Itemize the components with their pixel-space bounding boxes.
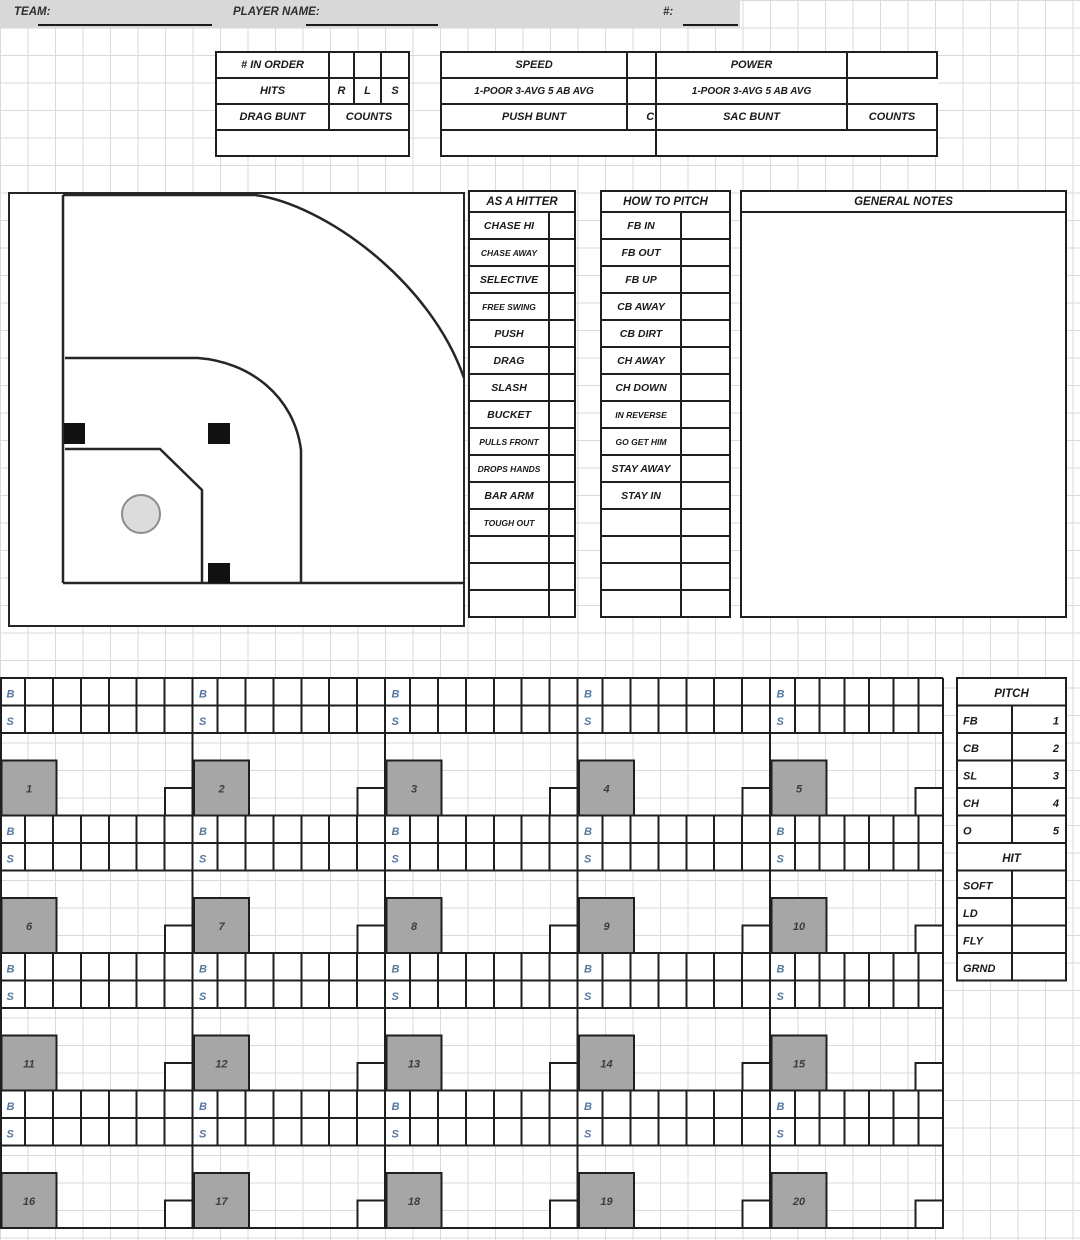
- connector-cell[interactable]: [916, 1063, 944, 1091]
- strike-row-label: S: [584, 1129, 592, 1141]
- info-cell: SAC BUNT: [656, 104, 847, 130]
- info-cell: DRAG BUNT: [216, 104, 329, 130]
- hit-type-value-cell[interactable]: [1012, 871, 1066, 899]
- player-name-label: PLAYER NAME:: [233, 6, 320, 18]
- info-cell: PUSH BUNT: [441, 104, 627, 130]
- check-cell[interactable]: [681, 239, 730, 266]
- connector-cell[interactable]: [916, 1201, 944, 1229]
- general-notes-header: GENERAL NOTES: [740, 190, 1067, 213]
- at-bat-number: 3: [411, 784, 417, 796]
- first-base: [208, 563, 230, 583]
- column-header: HOW TO PITCH: [601, 191, 730, 212]
- blank-label: [601, 563, 681, 590]
- check-cell[interactable]: [549, 536, 575, 563]
- info-cell: S: [381, 78, 409, 104]
- trait-label: CH DOWN: [601, 374, 681, 401]
- at-bat-number: 1: [26, 784, 32, 796]
- connector-cell[interactable]: [743, 1201, 771, 1229]
- trait-label: BUCKET: [469, 401, 549, 428]
- at-bat-number: 4: [602, 784, 609, 796]
- player-name-input-line[interactable]: [306, 24, 438, 26]
- check-cell[interactable]: [549, 509, 575, 536]
- ball-row-label: B: [7, 1101, 15, 1113]
- check-cell[interactable]: [549, 212, 575, 239]
- connector-cell[interactable]: [743, 788, 771, 816]
- second-base: [208, 423, 230, 444]
- connector-cell[interactable]: [358, 1201, 386, 1229]
- ball-row-label: B: [7, 689, 15, 701]
- blank-cell[interactable]: [847, 52, 937, 78]
- strike-row-label: S: [392, 854, 400, 866]
- as-a-hitter-table: AS A HITTERCHASE HICHASE AWAYSELECTIVEFR…: [468, 190, 576, 618]
- ball-row-label: B: [199, 689, 207, 701]
- ball-row-label: B: [7, 826, 15, 838]
- strike-row-label: S: [7, 854, 15, 866]
- ball-row-label: B: [199, 826, 207, 838]
- info-cell: L: [354, 78, 381, 104]
- at-bat-number: 19: [600, 1196, 613, 1208]
- team-input-line[interactable]: [38, 24, 212, 26]
- strike-row-label: S: [777, 716, 785, 728]
- ball-row-label: B: [392, 964, 400, 976]
- pitch-type-value: 3: [1053, 771, 1059, 783]
- trait-label: FB UP: [601, 266, 681, 293]
- connector-cell[interactable]: [165, 788, 193, 816]
- trait-label: CHASE HI: [469, 212, 549, 239]
- check-cell[interactable]: [549, 455, 575, 482]
- hit-type-label: GRND: [963, 963, 995, 975]
- blank-label: [469, 563, 549, 590]
- trait-label: IN REVERSE: [601, 401, 681, 428]
- trait-label: FB IN: [601, 212, 681, 239]
- check-cell[interactable]: [681, 212, 730, 239]
- at-bat-number: 16: [23, 1196, 36, 1208]
- ball-row-label: B: [392, 1101, 400, 1113]
- connector-cell[interactable]: [916, 926, 944, 954]
- ball-row-label: B: [777, 689, 785, 701]
- ball-row-label: B: [7, 964, 15, 976]
- ball-row-label: B: [199, 964, 207, 976]
- strike-row-label: S: [584, 716, 592, 728]
- trait-label: TOUGH OUT: [469, 509, 549, 536]
- check-cell[interactable]: [681, 536, 730, 563]
- blank-label: [601, 536, 681, 563]
- ball-row-label: B: [392, 826, 400, 838]
- check-cell[interactable]: [549, 239, 575, 266]
- blank-cell[interactable]: [656, 130, 937, 156]
- connector-cell[interactable]: [550, 926, 578, 954]
- blank-label: [601, 590, 681, 617]
- at-bat-number: 18: [408, 1196, 421, 1208]
- at-bat-number: 12: [215, 1059, 227, 1071]
- check-cell[interactable]: [549, 401, 575, 428]
- strike-row-label: S: [7, 991, 15, 1003]
- trait-label: SELECTIVE: [469, 266, 549, 293]
- number-label: #:: [663, 6, 673, 18]
- check-cell[interactable]: [549, 320, 575, 347]
- ball-row-label: B: [199, 1101, 207, 1113]
- blank-cell[interactable]: [354, 52, 381, 78]
- strike-row-label: S: [199, 1129, 207, 1141]
- blank-label: [601, 509, 681, 536]
- pitch-type-label: FB: [963, 716, 978, 728]
- blank-label: [469, 590, 549, 617]
- ball-row-label: B: [777, 964, 785, 976]
- trait-label: CH AWAY: [601, 347, 681, 374]
- ball-row-label: B: [777, 826, 785, 838]
- check-cell[interactable]: [549, 293, 575, 320]
- check-cell[interactable]: [681, 266, 730, 293]
- connector-cell[interactable]: [743, 1063, 771, 1091]
- hit-type-value-cell[interactable]: [1012, 953, 1066, 981]
- pitch-type-value: 4: [1052, 798, 1059, 810]
- strike-row-label: S: [777, 1129, 785, 1141]
- info-cell: R: [329, 78, 354, 104]
- trait-label: GO GET HIM: [601, 428, 681, 455]
- strike-row-label: S: [199, 991, 207, 1003]
- check-cell[interactable]: [549, 374, 575, 401]
- how-to-pitch-table: HOW TO PITCHFB INFB OUTFB UPCB AWAYCB DI…: [600, 190, 731, 618]
- trait-label: DROPS HANDS: [469, 455, 549, 482]
- at-bat-number: 13: [408, 1059, 420, 1071]
- connector-cell[interactable]: [358, 926, 386, 954]
- check-cell[interactable]: [681, 563, 730, 590]
- connector-cell[interactable]: [743, 926, 771, 954]
- check-cell[interactable]: [549, 482, 575, 509]
- hit-type-value-cell[interactable]: [1012, 898, 1066, 926]
- connector-cell[interactable]: [550, 1063, 578, 1091]
- check-cell[interactable]: [681, 590, 730, 617]
- info-cell: HITS: [216, 78, 329, 104]
- strike-row-label: S: [777, 854, 785, 866]
- number-input-line[interactable]: [683, 24, 738, 26]
- scouting-sheet: TEAM: PLAYER NAME: #: # IN ORDERHITSRLSD…: [0, 0, 1080, 1240]
- ball-row-label: B: [584, 1101, 592, 1113]
- connector-cell[interactable]: [165, 1201, 193, 1229]
- connector-cell[interactable]: [550, 788, 578, 816]
- at-bat-number: 20: [792, 1196, 806, 1208]
- trait-label: CHASE AWAY: [469, 239, 549, 266]
- pitch-type-label: CH: [963, 798, 980, 810]
- trait-label: STAY IN: [601, 482, 681, 509]
- ball-row-label: B: [584, 826, 592, 838]
- pitchers-mound: [122, 495, 160, 533]
- trait-label: STAY AWAY: [601, 455, 681, 482]
- trait-label: DRAG: [469, 347, 549, 374]
- info-cell: SPEED: [441, 52, 627, 78]
- hit-type-label: FLY: [963, 936, 985, 948]
- info-box-2: POWER1-POOR 3-AVG 5 AB AVGSAC BUNTCOUNTS: [655, 51, 938, 157]
- info-cell: # IN ORDER: [216, 52, 329, 78]
- trait-label: FREE SWING: [469, 293, 549, 320]
- strike-row-label: S: [584, 854, 592, 866]
- strike-row-label: S: [392, 991, 400, 1003]
- check-cell[interactable]: [549, 347, 575, 374]
- check-cell[interactable]: [681, 455, 730, 482]
- column-header: AS A HITTER: [469, 191, 575, 212]
- at-bat-number: 14: [600, 1059, 612, 1071]
- ball-row-label: B: [584, 964, 592, 976]
- strike-row-label: S: [584, 991, 592, 1003]
- at-bat-number: 8: [411, 921, 418, 933]
- trait-label: FB OUT: [601, 239, 681, 266]
- team-label: TEAM:: [14, 6, 50, 18]
- at-bat-number: 7: [218, 921, 225, 933]
- ball-row-label: B: [584, 689, 592, 701]
- check-cell[interactable]: [681, 482, 730, 509]
- strike-row-label: S: [777, 991, 785, 1003]
- strike-row-label: S: [392, 716, 400, 728]
- info-cell: 1-POOR 3-AVG 5 AB AVG: [441, 78, 627, 104]
- pitch-type-value: 1: [1053, 716, 1059, 728]
- trait-label: CB AWAY: [601, 293, 681, 320]
- connector-cell[interactable]: [358, 1063, 386, 1091]
- check-cell[interactable]: [681, 320, 730, 347]
- third-base: [64, 423, 85, 444]
- check-cell[interactable]: [681, 428, 730, 455]
- ball-row-label: B: [392, 689, 400, 701]
- info-box-0: # IN ORDERHITSRLSDRAG BUNTCOUNTS: [215, 51, 410, 157]
- check-cell[interactable]: [681, 509, 730, 536]
- check-cell[interactable]: [549, 563, 575, 590]
- pitch-type-label: O: [963, 826, 972, 838]
- connector-cell[interactable]: [550, 1201, 578, 1229]
- strike-row-label: S: [392, 1129, 400, 1141]
- blank-cell[interactable]: [216, 130, 409, 156]
- trait-label: PULLS FRONT: [469, 428, 549, 455]
- check-cell[interactable]: [549, 590, 575, 617]
- strike-row-label: S: [7, 1129, 15, 1141]
- blank-cell[interactable]: [381, 52, 409, 78]
- strike-row-label: S: [199, 716, 207, 728]
- at-bat-number: 15: [793, 1059, 806, 1071]
- at-bat-number: 5: [796, 784, 803, 796]
- at-bat-number: 17: [215, 1196, 228, 1208]
- pitch-type-value: 5: [1053, 826, 1060, 838]
- check-cell[interactable]: [681, 347, 730, 374]
- pitch-legend-header: PITCH: [994, 688, 1029, 700]
- hit-type-label: LD: [963, 908, 978, 920]
- hit-type-label: SOFT: [963, 881, 994, 893]
- check-cell[interactable]: [681, 293, 730, 320]
- info-cell: 1-POOR 3-AVG 5 AB AVG: [656, 78, 847, 104]
- at-bat-number: 10: [793, 921, 806, 933]
- general-notes-box[interactable]: [740, 211, 1067, 618]
- at-bat-number: 2: [217, 784, 224, 796]
- field-diagram: [8, 192, 468, 628]
- at-bat-number: 11: [23, 1059, 34, 1071]
- connector-cell[interactable]: [165, 926, 193, 954]
- pitch-type-label: CB: [963, 743, 979, 755]
- info-cell: COUNTS: [847, 104, 937, 130]
- trait-label: CB DIRT: [601, 320, 681, 347]
- scoring-grid[interactable]: BS1BS2BS3BS4BS5BS6BS7BS8BS9BS10BS11BS12B…: [0, 660, 1080, 1240]
- connector-cell[interactable]: [358, 788, 386, 816]
- check-cell[interactable]: [549, 428, 575, 455]
- check-cell[interactable]: [681, 401, 730, 428]
- blank-label: [469, 536, 549, 563]
- at-bat-number: 6: [26, 921, 33, 933]
- at-bat-number: 9: [603, 921, 610, 933]
- info-cell: POWER: [656, 52, 847, 78]
- info-cell: COUNTS: [329, 104, 409, 130]
- strike-row-label: S: [199, 854, 207, 866]
- check-cell[interactable]: [549, 266, 575, 293]
- pitch-type-label: SL: [963, 771, 977, 783]
- hit-legend-header: HIT: [1002, 853, 1022, 865]
- trait-label: BAR ARM: [469, 482, 549, 509]
- hit-type-value-cell[interactable]: [1012, 926, 1066, 954]
- check-cell[interactable]: [681, 374, 730, 401]
- ball-row-label: B: [777, 1101, 785, 1113]
- trait-label: SLASH: [469, 374, 549, 401]
- blank-cell[interactable]: [329, 52, 354, 78]
- connector-cell[interactable]: [165, 1063, 193, 1091]
- field-border: [9, 193, 464, 626]
- strike-row-label: S: [7, 716, 15, 728]
- pitch-type-value: 2: [1052, 743, 1059, 755]
- trait-label: PUSH: [469, 320, 549, 347]
- connector-cell[interactable]: [916, 788, 944, 816]
